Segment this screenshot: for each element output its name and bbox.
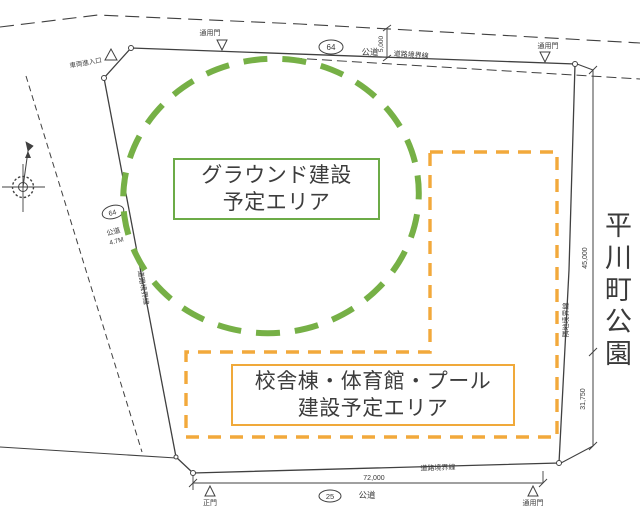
right-dimension bbox=[561, 64, 597, 463]
road-edge-left bbox=[26, 76, 142, 452]
dimension-right-upper: 45,000 bbox=[582, 247, 589, 269]
gate-label-top-right: 通用門 bbox=[538, 41, 559, 50]
road-edge-top bbox=[0, 15, 640, 43]
gate-marker-main-icon bbox=[205, 486, 215, 496]
gate-marker-top-right-icon bbox=[540, 52, 550, 62]
adjacent-boundary-label: 隣地境界線 bbox=[561, 303, 570, 338]
ground-area-label-line1: グラウンド建設 bbox=[175, 162, 378, 189]
route-number-top: 64 bbox=[327, 43, 336, 52]
road-label-bottom: 公道 bbox=[358, 490, 376, 500]
site-plan-canvas: 45,000 31,750 隣地境界線 64 公道 道路境界線 5,000 通用… bbox=[0, 0, 640, 507]
site-plan-drawing: 45,000 31,750 隣地境界線 64 公道 道路境界線 5,000 通用… bbox=[0, 0, 640, 507]
road-label-top: 公道 bbox=[361, 47, 379, 57]
dimension-right-lower: 31,750 bbox=[580, 388, 587, 410]
road-label-left: 公道 bbox=[105, 225, 121, 237]
compass-icon bbox=[2, 142, 45, 212]
road-boundary-label-top: 道路境界線 bbox=[393, 49, 429, 60]
dimension-road-width-top: 5,000 bbox=[378, 35, 385, 52]
road-width-left: 4.7M bbox=[109, 236, 125, 247]
road-boundary-label-bottom: 道路境界線 bbox=[420, 462, 455, 472]
gate-label-bottom-right: 通用門 bbox=[523, 498, 544, 507]
entrance-marker-icon bbox=[105, 49, 117, 60]
park-name-label: 平川町公園 bbox=[597, 211, 636, 386]
building-area-label-box: 校舎棟・体育館・プール 建設予定エリア bbox=[231, 364, 515, 426]
gate-marker-bottom-right-icon bbox=[528, 486, 538, 496]
entrance-label-left: 車両進入口 bbox=[69, 55, 103, 70]
gate-marker-top-left-icon bbox=[217, 40, 227, 50]
gate-label-main: 正門 bbox=[203, 499, 217, 507]
gate-label-top-left: 通用門 bbox=[200, 28, 221, 37]
building-area-label-line1: 校舎棟・体育館・プール bbox=[233, 368, 513, 395]
ground-area-label-line2: 予定エリア bbox=[175, 189, 378, 216]
route-number-bottom: 25 bbox=[326, 492, 334, 501]
route-number-left: 64 bbox=[108, 209, 117, 218]
road-edge-bottom-left bbox=[0, 447, 176, 458]
dimension-site-width: 72,000 bbox=[363, 475, 385, 482]
ground-area-label-box: グラウンド建設 予定エリア bbox=[173, 158, 380, 220]
road-boundary-label-left: 道路境界線 bbox=[136, 270, 151, 306]
building-area-label-line2: 建設予定エリア bbox=[233, 395, 513, 422]
